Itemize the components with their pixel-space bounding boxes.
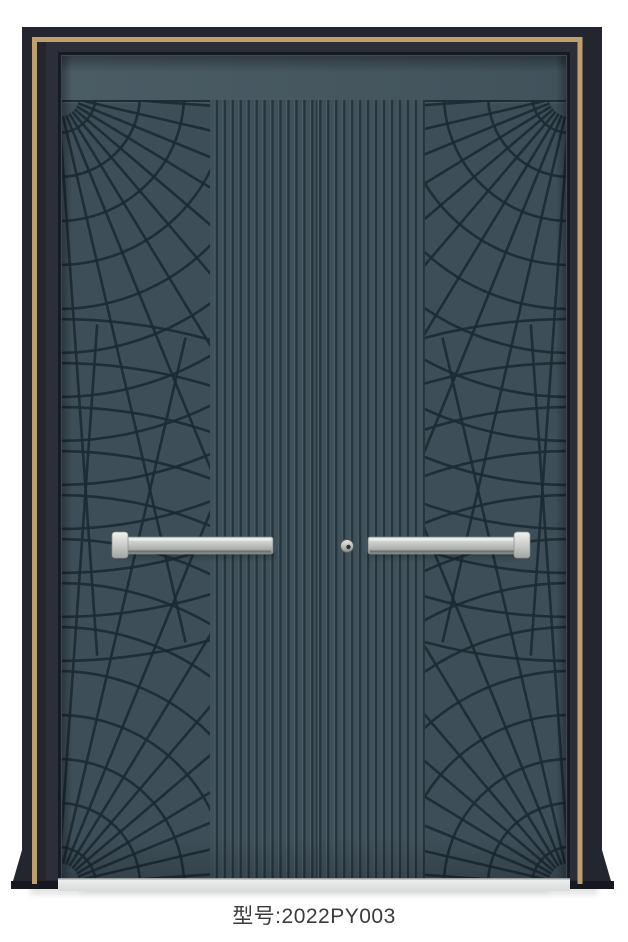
door-photo	[0, 0, 628, 900]
left-handle-cap	[112, 532, 128, 558]
right-handle-cap	[514, 532, 530, 558]
fluted-center-panel	[210, 100, 425, 878]
model-number: 型号:2022PY003	[0, 902, 628, 932]
lock-cylinder	[341, 540, 354, 553]
product-photo: 型号:2022PY003	[0, 0, 628, 942]
door-sill	[58, 878, 570, 891]
center-seam	[316, 100, 318, 878]
